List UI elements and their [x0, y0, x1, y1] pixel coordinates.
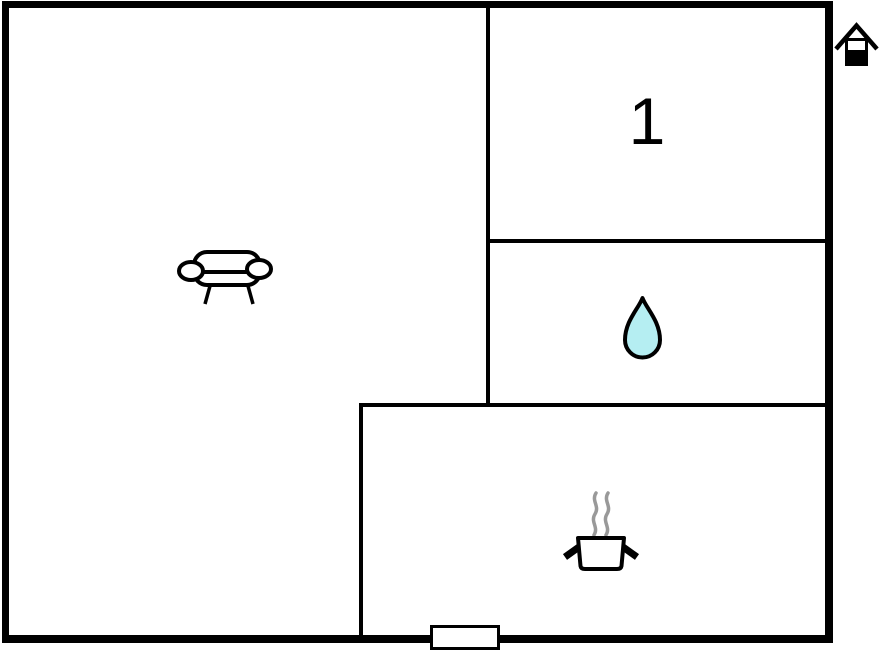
floor-plan: 1	[0, 0, 881, 652]
steam-lines	[593, 493, 608, 535]
room-bedroom-1: 1	[490, 8, 825, 239]
outer-wall-left	[2, 1, 9, 643]
door-marker	[430, 625, 500, 650]
outer-wall-right	[825, 1, 833, 643]
house-icon	[834, 20, 881, 70]
bedroom-number-label: 1	[617, 88, 677, 154]
sofa-icon	[176, 246, 278, 308]
water-drop-icon	[620, 293, 666, 363]
room-kitchen	[363, 407, 825, 635]
cooking-pot-icon	[558, 486, 648, 580]
room-living	[9, 8, 486, 403]
outer-wall-top	[2, 1, 833, 8]
water-drop-shape	[625, 298, 660, 358]
outer-wall-bottom	[2, 635, 833, 643]
room-bathroom	[490, 243, 825, 403]
